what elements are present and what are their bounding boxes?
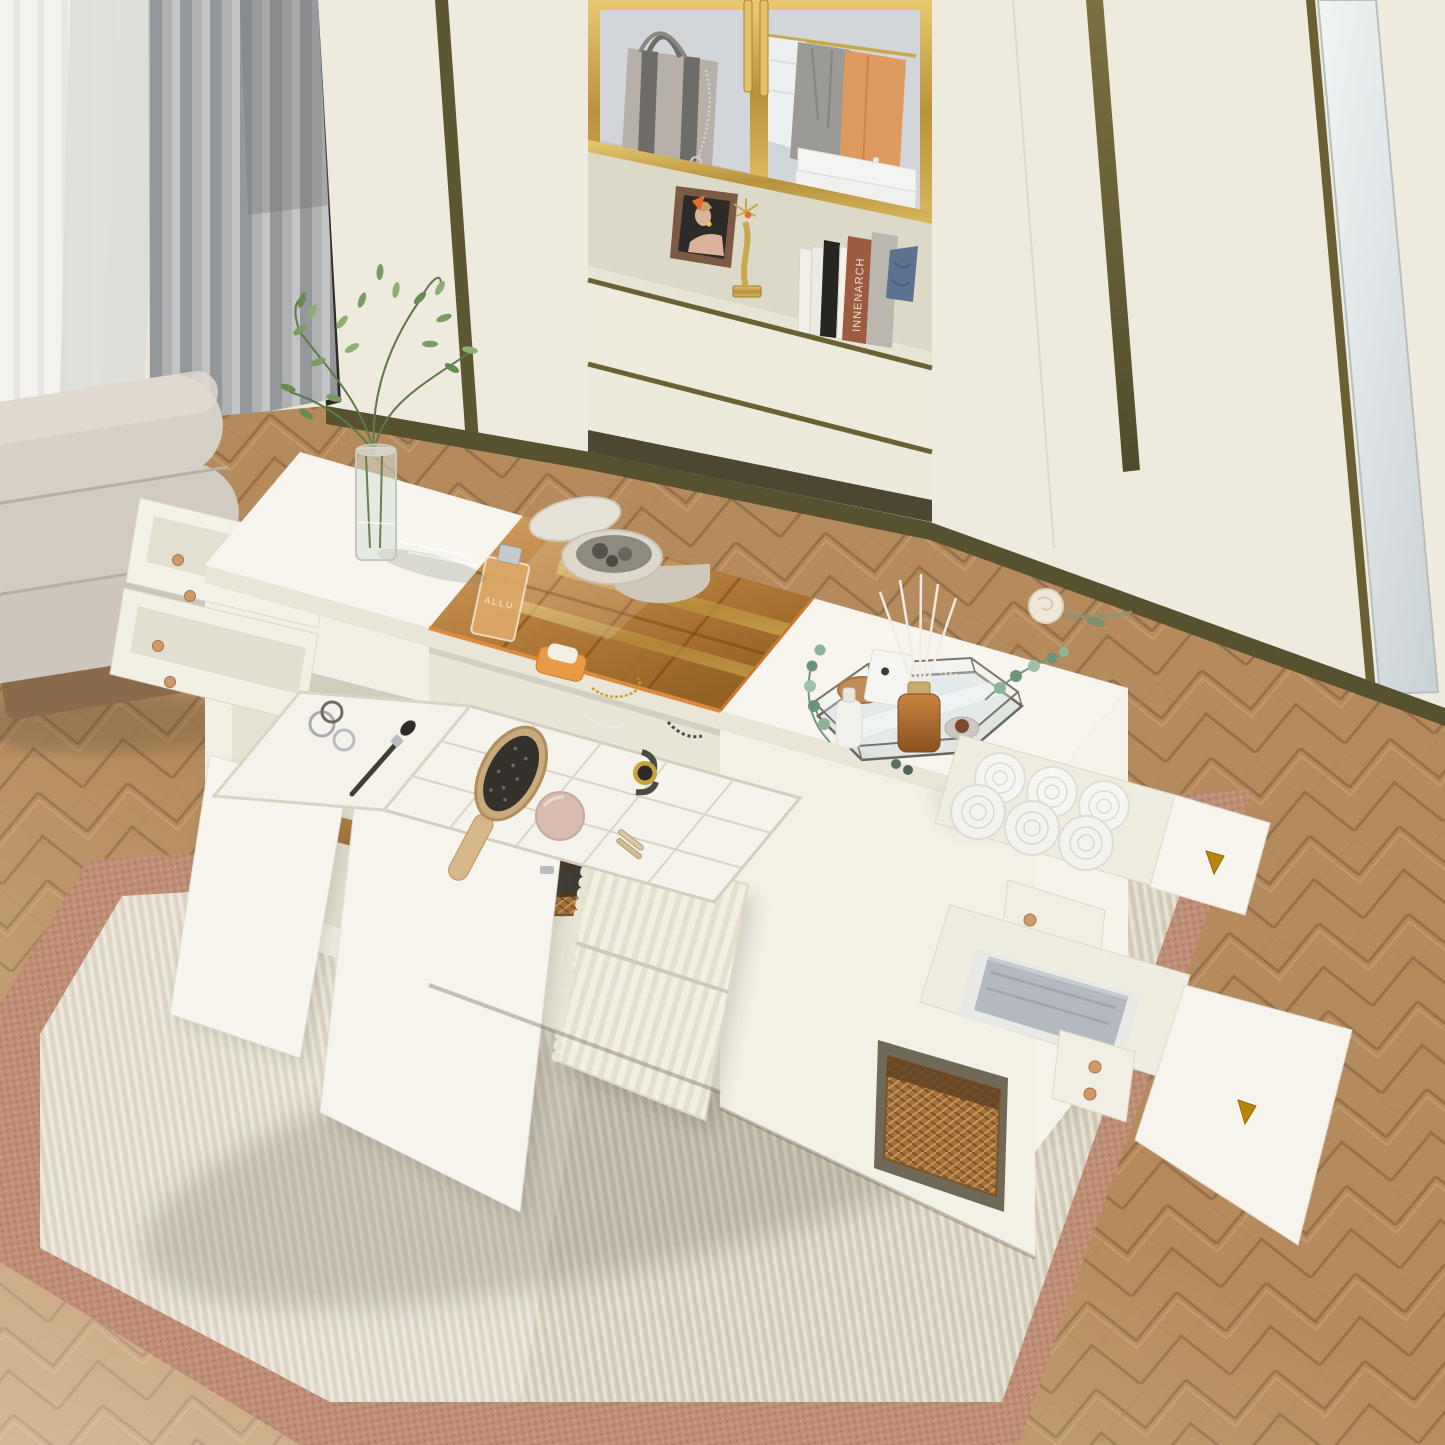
- towel-roll: [1005, 801, 1059, 855]
- hinge-icon: [540, 866, 554, 874]
- sculpture-accent: [745, 212, 752, 219]
- jar-label: [955, 719, 969, 733]
- curtain-shadow: [240, 0, 330, 215]
- rivet-icon: [1084, 1088, 1096, 1100]
- rivet-icon: [185, 591, 196, 602]
- scene-canvas: INNENARCH: [0, 0, 1445, 1445]
- earring: [706, 221, 711, 226]
- denim-fabric: [886, 246, 918, 302]
- vase-glass: [356, 448, 396, 560]
- box-interior: [576, 535, 652, 573]
- sculpture-stem: [744, 222, 748, 288]
- product-photo: INNENARCH: [0, 0, 1445, 1445]
- stone: [606, 555, 618, 567]
- towel-roll: [1059, 816, 1113, 870]
- watch-face: [638, 766, 653, 781]
- stone: [618, 547, 632, 561]
- cabinet-handle-icon: [744, 0, 752, 92]
- rivet-icon: [1024, 914, 1036, 926]
- rose-bloom: [1029, 589, 1063, 623]
- cabinet-handle-icon: [760, 0, 768, 96]
- rivet-icon: [173, 555, 184, 566]
- picture-frame: [670, 186, 738, 268]
- towel-roll: [951, 785, 1005, 839]
- stone: [592, 543, 608, 559]
- blush-compact: [536, 792, 584, 840]
- vase-rim: [356, 444, 396, 456]
- rivet-icon: [165, 677, 176, 688]
- diffuser-bottle: [898, 694, 940, 752]
- rivet-icon: [1089, 1061, 1101, 1073]
- rivet-icon: [153, 641, 164, 652]
- tote-bag-body: [622, 48, 718, 168]
